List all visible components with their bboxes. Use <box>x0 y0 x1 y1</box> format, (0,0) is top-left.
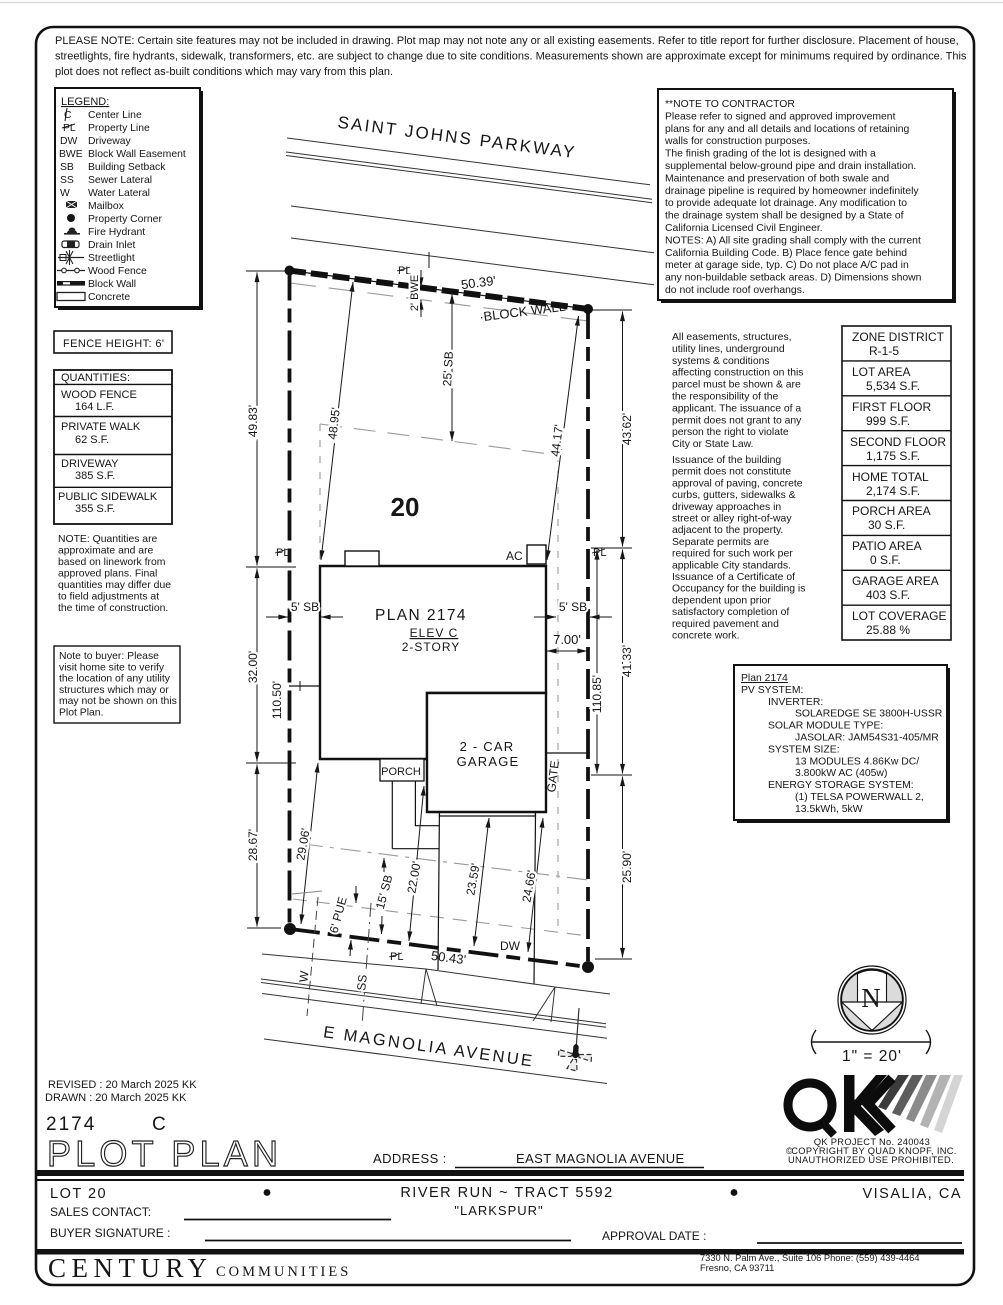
svg-text:approval of paving, concrete: approval of paving, concrete <box>672 478 803 489</box>
svg-text:VISALIA, CA: VISALIA, CA <box>862 1186 962 1202</box>
svg-text:50.39': 50.39' <box>460 273 497 292</box>
svg-text:W: W <box>296 970 311 983</box>
svg-text:HOME TOTAL: HOME TOTAL <box>852 470 929 484</box>
svg-text:62 S.F.: 62 S.F. <box>75 434 109 446</box>
svg-text:systems & conditions: systems & conditions <box>672 356 770 367</box>
svg-text:AC: AC <box>506 549 523 563</box>
svg-text:Fire Hydrant: Fire Hydrant <box>88 227 145 238</box>
svg-text:48.95': 48.95' <box>325 407 343 441</box>
svg-text:GATE: GATE <box>544 760 562 793</box>
svg-text:Issuance of a Certificate of: Issuance of a Certificate of <box>672 572 795 583</box>
svg-text:385 S.F.: 385 S.F. <box>75 470 115 482</box>
svg-text:Concrete: Concrete <box>88 292 130 303</box>
svg-text:APPROVAL DATE :: APPROVAL DATE : <box>602 1229 706 1243</box>
svg-text:Separate permits are: Separate permits are <box>672 537 769 548</box>
svg-text:parcel must be shown & are: parcel must be shown & are <box>672 380 801 391</box>
svg-text:Note to buyer: Please: Note to buyer: Please <box>59 651 159 662</box>
svg-text:PATIO AREA: PATIO AREA <box>852 539 922 553</box>
svg-text:QUANTITIES:: QUANTITIES: <box>61 372 130 384</box>
svg-text:2-STORY: 2-STORY <box>402 640 461 654</box>
svg-text:20: 20 <box>391 492 420 522</box>
svg-text:Please refer to signed and app: Please refer to signed and approved impr… <box>665 111 896 122</box>
svg-text:PLAN 2174: PLAN 2174 <box>375 607 467 624</box>
svg-text:PUBLIC SIDEWALK: PUBLIC SIDEWALK <box>58 491 158 503</box>
svg-text:utility lines, underground: utility lines, underground <box>672 344 785 355</box>
svg-text:Center Line: Center Line <box>88 110 142 121</box>
svg-text:Property Line: Property Line <box>88 123 150 134</box>
svg-text:7330 N. Palm Ave., Suite 106: 7330 N. Palm Ave., Suite 106 Phone: (559… <box>700 1253 920 1263</box>
svg-text:Building Setback: Building Setback <box>88 162 166 173</box>
svg-text:2174: 2174 <box>46 1114 96 1135</box>
svg-text:EAST MAGNOLIA AVENUE: EAST MAGNOLIA AVENUE <box>516 1151 685 1166</box>
svg-text:ENERGY STORAGE SYSTEM:: ENERGY STORAGE SYSTEM: <box>768 780 914 791</box>
svg-text:Maintenance and preservation o: Maintenance and preservation of both swa… <box>665 173 889 184</box>
svg-text:DRAWN : 20 March 2025 KK: DRAWN : 20 March 2025 KK <box>45 1092 187 1104</box>
svg-text:PLEASE NOTE: Certain site fea: PLEASE NOTE: Certain site features may n… <box>55 35 959 47</box>
svg-text:25' SB: 25' SB <box>440 351 456 387</box>
svg-text:3.800kW AC (405w): 3.800kW AC (405w) <box>795 768 887 779</box>
svg-text:concrete work.: concrete work. <box>672 631 740 642</box>
svg-text:The finish grading of the lot: The finish grading of the lot is designe… <box>665 149 876 160</box>
svg-text:50.43': 50.43' <box>430 948 467 967</box>
svg-text:All easements, structures,: All easements, structures, <box>672 332 792 343</box>
svg-text:SB: SB <box>60 162 74 173</box>
svg-text:to field adjustments at: to field adjustments at <box>58 592 159 603</box>
svg-text:Streetlight: Streetlight <box>88 253 135 264</box>
svg-text:affecting construction on this: affecting construction on this <box>672 368 804 379</box>
svg-text:SAINT JOHNS PARKWAY: SAINT JOHNS PARKWAY <box>337 113 578 162</box>
svg-text:C: C <box>152 1114 166 1135</box>
svg-text:Issuance of the building: Issuance of the building <box>672 455 781 466</box>
svg-text:Fresno, CA 93711: Fresno, CA 93711 <box>700 1263 774 1273</box>
svg-text:Block Wall: Block Wall <box>88 279 136 290</box>
svg-text:44.17': 44.17' <box>548 424 566 458</box>
svg-text:Plot Plan.: Plot Plan. <box>59 708 103 719</box>
svg-text:49.83': 49.83' <box>246 405 260 437</box>
svg-text:UNAUTHORIZED USE PROHIBITED.: UNAUTHORIZED USE PROHIBITED. <box>788 1155 954 1165</box>
svg-text:7.00': 7.00' <box>553 632 581 647</box>
svg-text:NOTES: A) All site grading sh: NOTES: A) All site grading shall comply … <box>665 235 921 246</box>
svg-text:driveway approaches in: driveway approaches in <box>672 502 781 513</box>
svg-text:Sewer Lateral: Sewer Lateral <box>88 175 152 186</box>
svg-text:LOT COVERAGE: LOT COVERAGE <box>852 609 946 623</box>
svg-text:approximate and are: approximate and are <box>58 546 154 557</box>
svg-text:GARAGE: GARAGE <box>457 754 520 769</box>
svg-text:(1) TELSA POWERWALL 2,: (1) TELSA POWERWALL 2, <box>795 792 924 803</box>
svg-text:22.00': 22.00' <box>404 860 423 894</box>
svg-text:13.5kWh, 5kW: 13.5kWh, 5kW <box>795 804 863 815</box>
svg-text:ELEV C: ELEV C <box>410 626 459 640</box>
svg-text:43.62': 43.62' <box>620 413 634 445</box>
svg-text:California Licensed Civil Engi: California Licensed Civil Engineer. <box>665 223 823 234</box>
svg-text:SECOND FLOOR: SECOND FLOOR <box>850 435 946 449</box>
svg-text:streetlights, fire hydrants, s: streetlights, fire hydrants, sidewalk, t… <box>55 51 967 63</box>
svg-text:WOOD FENCE: WOOD FENCE <box>61 389 137 401</box>
svg-text:the drainage system shall be d: the drainage system shall be designed by… <box>665 211 904 222</box>
svg-text:the location of any utility: the location of any utility <box>59 674 171 685</box>
svg-text:street or alley right-of-way: street or alley right-of-way <box>672 514 792 525</box>
svg-text:City or State Law.: City or State Law. <box>672 439 753 450</box>
svg-text:ADDRESS :: ADDRESS : <box>373 1151 447 1166</box>
svg-text:based on linework from: based on linework from <box>58 557 165 568</box>
svg-text:adjacent to the property.: adjacent to the property. <box>672 525 783 536</box>
svg-text:Water Lateral: Water Lateral <box>88 188 150 199</box>
svg-text:PORCH: PORCH <box>381 766 421 778</box>
svg-text:LOT 20: LOT 20 <box>50 1186 107 1202</box>
svg-text:DRIVEWAY: DRIVEWAY <box>61 458 119 470</box>
svg-text:DW: DW <box>60 136 78 147</box>
svg-text:permit does not grant to any: permit does not grant to any <box>672 415 802 426</box>
svg-text:visit home site to verify: visit home site to verify <box>59 662 165 673</box>
svg-text:LOT AREA: LOT AREA <box>852 365 910 379</box>
svg-text:drainage pipeline is required: drainage pipeline is required by homeown… <box>665 186 919 197</box>
svg-text:the responsibility of the: the responsibility of the <box>672 392 778 403</box>
svg-text:24.66': 24.66' <box>519 869 538 903</box>
svg-text:N: N <box>861 983 881 1013</box>
svg-text:ZONE DISTRICT: ZONE DISTRICT <box>852 330 945 344</box>
svg-text:quantities may differ due: quantities may differ due <box>58 580 171 591</box>
svg-text:PORCH AREA: PORCH AREA <box>852 504 931 518</box>
svg-text:2,174 S.F.: 2,174 S.F. <box>866 484 920 498</box>
svg-text:permit does not constitute: permit does not constitute <box>672 467 791 478</box>
svg-text:structures which may or: structures which may or <box>59 685 169 696</box>
svg-text:164 L.F.: 164 L.F. <box>75 401 114 413</box>
svg-text:plot does not reflect as-built: plot does not reflect as-built condition… <box>55 66 393 78</box>
svg-text:2 - CAR: 2 - CAR <box>460 739 515 754</box>
svg-text:supplemental below-ground pipe: supplemental below-ground pipe and drain… <box>665 161 916 172</box>
svg-text:Driveway: Driveway <box>88 136 132 147</box>
svg-text:LEGEND:: LEGEND: <box>61 96 109 108</box>
svg-text:GARAGE AREA: GARAGE AREA <box>852 574 939 588</box>
svg-text:1" = 20': 1" = 20' <box>842 1048 902 1065</box>
svg-text:R-1-5: R-1-5 <box>869 344 899 358</box>
svg-text:to provide adequate lot draina: to provide adequate lot drainage. Any mo… <box>665 198 907 209</box>
svg-text:SOLAREDGE SE 3800H-USSR: SOLAREDGE SE 3800H-USSR <box>795 709 943 720</box>
svg-text:required for such work per: required for such work per <box>672 549 793 560</box>
svg-text:person the right to violate: person the right to violate <box>672 427 789 438</box>
svg-text:Property Corner: Property Corner <box>88 214 162 225</box>
svg-text:FIRST FLOOR: FIRST FLOOR <box>852 400 931 414</box>
svg-text:Plan 2174: Plan 2174 <box>741 673 788 684</box>
svg-text:REVISED : 20 March 2025 KK: REVISED : 20 March 2025 KK <box>48 1079 197 1091</box>
svg-text:Drain Inlet: Drain Inlet <box>88 240 135 251</box>
svg-text:applicant. The issuance of a: applicant. The issuance of a <box>672 403 801 414</box>
svg-text:23.59': 23.59' <box>463 862 482 896</box>
svg-text:W: W <box>60 188 70 199</box>
svg-text:5' SB: 5' SB <box>559 600 587 614</box>
svg-text:COMMUNITIES: COMMUNITIES <box>216 1264 351 1280</box>
svg-text:JASOLAR: JAM54S31-405/MR: JASOLAR: JAM54S31-405/MR <box>795 733 939 744</box>
svg-text:plans for any and all details: plans for any and all details and locati… <box>665 124 910 135</box>
svg-text:walls for construction purpose: walls for construction purposes. <box>664 136 811 147</box>
svg-text:California Building Code. B): California Building Code. B) Place fence… <box>665 248 907 259</box>
svg-text:DW: DW <box>500 939 521 953</box>
svg-text:0 S.F.: 0 S.F. <box>870 553 901 567</box>
svg-text:30 S.F.: 30 S.F. <box>868 518 905 532</box>
svg-text:5' SB: 5' SB <box>291 600 319 614</box>
svg-text:5,534 S.F.: 5,534 S.F. <box>866 379 920 393</box>
svg-text:INVERTER:: INVERTER: <box>768 697 823 708</box>
svg-text:NOTE: Quantities are: NOTE: Quantities are <box>58 534 158 545</box>
svg-text:CENTURY: CENTURY <box>48 1253 213 1283</box>
svg-text:28.67': 28.67' <box>246 829 260 861</box>
svg-text:32.00': 32.00' <box>246 651 260 683</box>
svg-text:110.85': 110.85' <box>590 675 604 713</box>
svg-text:required pavement and: required pavement and <box>672 619 779 630</box>
svg-text:PRIVATE WALK: PRIVATE WALK <box>61 421 141 433</box>
svg-text:BUYER SIGNATURE :: BUYER SIGNATURE : <box>50 1226 170 1240</box>
svg-text:355 S.F.: 355 S.F. <box>75 503 115 515</box>
svg-text:any non-buildable setback area: any non-buildable setback areas. D) Dime… <box>665 273 922 284</box>
svg-text:2' BWE: 2' BWE <box>409 275 421 311</box>
svg-text:25.90': 25.90' <box>620 851 634 883</box>
svg-text:RIVER RUN ~ TRACT 5592: RIVER RUN ~ TRACT 5592 <box>400 1185 613 1201</box>
svg-text:6' PUE: 6' PUE <box>327 895 350 934</box>
svg-text:the time of construction.: the time of construction. <box>58 603 168 614</box>
svg-text:do not include roof overhangs.: do not include roof overhangs. <box>665 285 805 296</box>
svg-text:may not be shown on this: may not be shown on this <box>59 696 177 707</box>
svg-text:BWE: BWE <box>59 149 83 160</box>
svg-text:15' SB: 15' SB <box>373 873 396 910</box>
svg-text:41.33': 41.33' <box>620 645 634 677</box>
svg-text:**NOTE TO CONTRACTOR: **NOTE TO CONTRACTOR <box>665 99 795 110</box>
svg-text:SS: SS <box>60 175 74 186</box>
svg-text:meter at garage side, typ. C): meter at garage side, typ. C) Do not pla… <box>665 260 909 271</box>
svg-text:Block Wall Easement: Block Wall Easement <box>88 149 186 160</box>
svg-text:Mailbox: Mailbox <box>88 201 125 212</box>
svg-text:SYSTEM SIZE:: SYSTEM SIZE: <box>768 744 840 755</box>
svg-text:25.88 %: 25.88 % <box>866 623 910 637</box>
svg-text:approved plans. Final: approved plans. Final <box>58 569 157 580</box>
svg-text:PV SYSTEM:: PV SYSTEM: <box>741 685 803 696</box>
svg-text:1,175 S.F.: 1,175 S.F. <box>866 449 920 463</box>
svg-text:satisfactory completion of: satisfactory completion of <box>672 607 789 618</box>
svg-text:SS: SS <box>354 974 370 991</box>
svg-text:SOLAR MODULE TYPE:: SOLAR MODULE TYPE: <box>768 721 883 732</box>
svg-text:E MAGNOLIA AVENUE: E MAGNOLIA AVENUE <box>322 1023 535 1070</box>
svg-text:SALES CONTACT:: SALES CONTACT: <box>50 1205 151 1219</box>
svg-text:999 S.F.: 999 S.F. <box>866 414 910 428</box>
svg-text:dependent upon prior: dependent upon prior <box>672 595 771 606</box>
svg-text:29.06': 29.06' <box>293 827 312 861</box>
svg-text:110.50': 110.50' <box>270 681 284 719</box>
svg-text:applicable City standards.: applicable City standards. <box>672 560 791 571</box>
svg-text:403 S.F.: 403 S.F. <box>866 588 910 602</box>
svg-text:curbs, gutters, sidewalks &: curbs, gutters, sidewalks & <box>672 490 796 501</box>
svg-text:13 MODULES 4.86Kw DC/: 13 MODULES 4.86Kw DC/ <box>795 756 919 767</box>
svg-text:"LARKSPUR": "LARKSPUR" <box>454 1203 543 1218</box>
svg-text:Wood Fence: Wood Fence <box>88 266 147 277</box>
svg-text:FENCE HEIGHT: 6': FENCE HEIGHT: 6' <box>63 338 164 350</box>
svg-text:Occupancy for the building is: Occupancy for the building is <box>672 584 805 595</box>
svg-text:PLOT PLAN: PLOT PLAN <box>47 1133 282 1174</box>
